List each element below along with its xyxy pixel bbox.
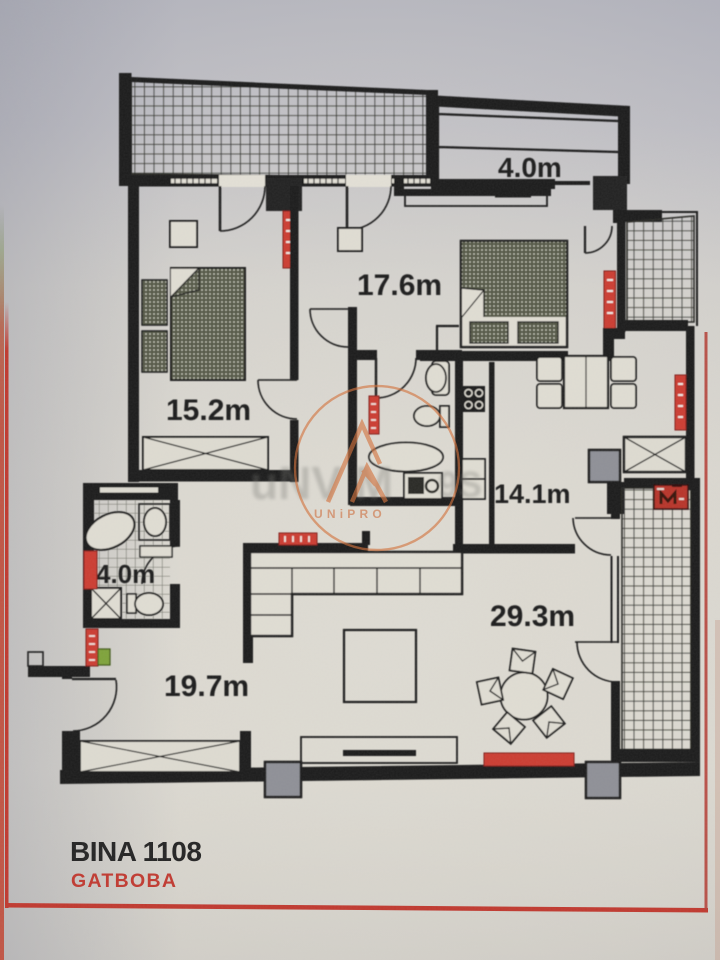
- svg-text:BINA 1108: BINA 1108: [70, 836, 201, 867]
- svg-text:UNiPRO: UNiPRO: [314, 507, 386, 521]
- svg-text:4.0m: 4.0m: [96, 559, 155, 589]
- svg-text:15.2m: 15.2m: [166, 394, 251, 427]
- svg-text:4.0m: 4.0m: [498, 152, 562, 183]
- svg-text:19.7m: 19.7m: [164, 670, 249, 703]
- svg-text:17.6m: 17.6m: [357, 269, 442, 302]
- svg-text:29.3m: 29.3m: [490, 600, 575, 633]
- svg-text:14.1m: 14.1m: [494, 479, 571, 509]
- svg-text:GATBOBA: GATBOBA: [71, 870, 177, 892]
